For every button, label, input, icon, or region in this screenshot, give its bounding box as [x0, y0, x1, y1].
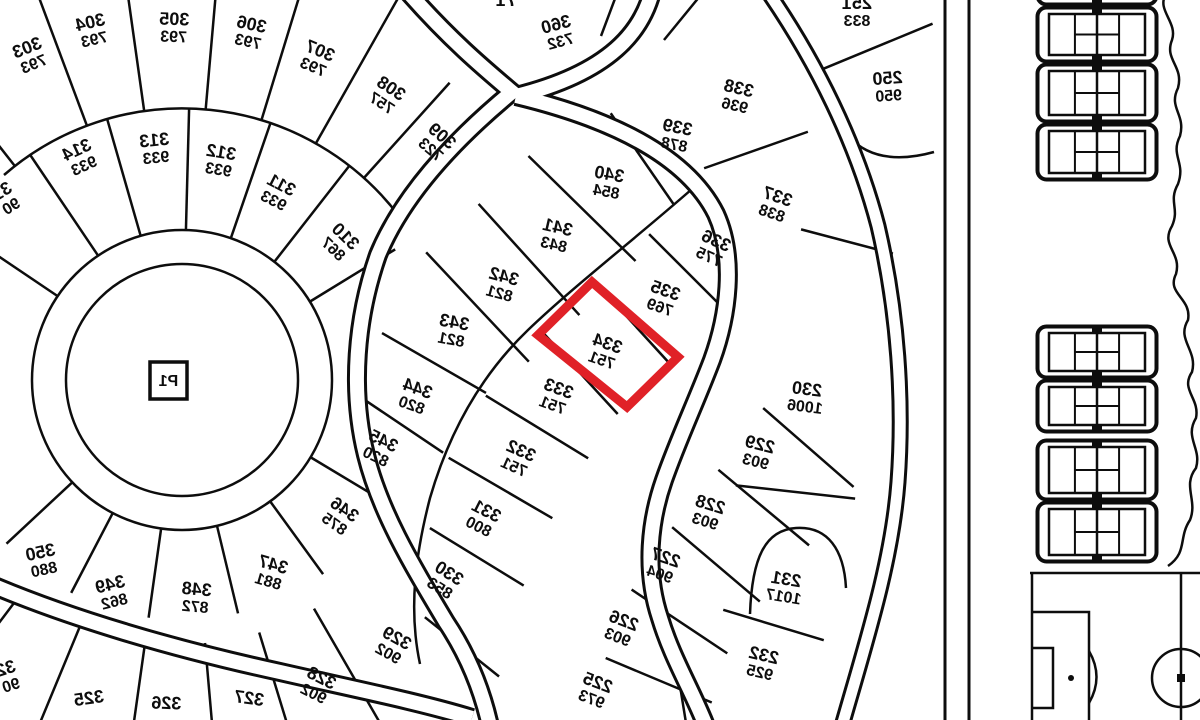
net-post [1092, 7, 1102, 13]
lot-label: 310867 [316, 219, 363, 266]
net-post [1092, 372, 1102, 378]
lot-area-number: 854 [591, 182, 620, 203]
goal-box [1032, 648, 1053, 708]
parcel-line [601, 0, 616, 36]
parcel-line [231, 123, 271, 238]
net-post [1092, 0, 1102, 5]
lot-area-number: 1006 [786, 397, 824, 418]
parcel-line [316, 0, 413, 143]
parcel-line [206, 0, 223, 109]
lot-number: 327 [233, 686, 266, 710]
net-post [1092, 502, 1102, 508]
parcel-line [718, 470, 809, 546]
net-post [1092, 380, 1102, 386]
lot-label: 226903 [600, 606, 641, 651]
tennis-court [1038, 124, 1157, 180]
lot-label: 228903 [688, 490, 728, 534]
lot-label: 225973 [574, 668, 615, 713]
lot-label: 333751 [535, 374, 576, 419]
net-post [1092, 116, 1102, 122]
net-post [1092, 426, 1102, 432]
parcel-line [186, 108, 189, 230]
ring-boundary-arc [4, 108, 399, 216]
road [516, 0, 652, 96]
lot-label: 350880 [24, 539, 61, 581]
parcel-line [763, 408, 853, 487]
center-spot [1177, 674, 1185, 682]
highlighted-lot-label: 334751 [585, 329, 625, 374]
lot-area-number: 833 [844, 13, 871, 30]
lot-label: 346875 [317, 493, 363, 541]
tennis-court [1038, 64, 1157, 122]
net-post [1092, 64, 1102, 70]
parcel-line [704, 132, 808, 169]
parcel-line [0, 228, 58, 296]
net-post [1092, 556, 1102, 562]
lot-label: 250950 [872, 67, 905, 106]
lot-label: 338936 [718, 75, 756, 118]
lot-label: 3290 [0, 656, 23, 697]
lot-number: 348 [181, 578, 213, 601]
lot-label: 335769 [643, 276, 683, 321]
lot-area-number: 793 [160, 29, 187, 47]
lot-label: 313933 [138, 129, 172, 169]
lot-number: 71 [496, 0, 516, 10]
net-post [1092, 56, 1102, 62]
lot-area-number: 933 [142, 149, 170, 169]
lot-label: 251833 [842, 0, 872, 30]
lot-label: 360732 [539, 11, 578, 55]
lot-label: 232925 [743, 642, 781, 685]
tennis-court [1038, 0, 1157, 5]
parcel-line [107, 119, 141, 236]
lot-label: 347881 [251, 551, 290, 595]
lot-label: 331800 [461, 495, 505, 542]
lot-label: 303793 [9, 33, 51, 79]
lot-label: 311933 [256, 169, 299, 215]
lot-label: 304793 [73, 9, 111, 52]
lot-label: 341843 [537, 214, 575, 257]
lot-label: 332751 [497, 435, 539, 481]
parcel-line [117, 0, 145, 111]
parcel-line [812, 24, 932, 74]
center-circle [1152, 649, 1200, 707]
lot-label: 2301006 [786, 377, 826, 418]
lot-number: 305 [159, 8, 190, 29]
lot-label: 327 [233, 686, 266, 710]
lot-label: 348872 [179, 578, 212, 617]
net-post [1092, 440, 1102, 446]
lot-label: 307793 [296, 36, 338, 82]
tennis-court [1038, 326, 1157, 378]
lot-area-number: 950 [875, 87, 903, 106]
lot-label: 343821 [435, 310, 471, 352]
penalty-box [1032, 612, 1089, 720]
parcel-line [672, 527, 760, 601]
tennis-courts [1038, 0, 1157, 562]
parcel-line [117, 641, 146, 720]
lot-number: 325 [73, 686, 106, 710]
soccer-field [1030, 573, 1200, 720]
lot-label: 306793 [231, 11, 268, 53]
lot-label: 344820 [394, 374, 435, 419]
net-post [1092, 124, 1102, 130]
plat-map: P1 3037933047933057933067933077933087573… [0, 0, 1200, 720]
lot-label: 229903 [739, 431, 777, 474]
lot-number: 251 [842, 0, 872, 13]
lot-label: 308757 [364, 72, 409, 119]
net-post [1092, 326, 1102, 332]
parcel-line [736, 485, 855, 498]
parcel-line [6, 482, 72, 543]
parcel-line [664, 0, 700, 40]
lot-label: 2311017 [764, 566, 805, 608]
lot-label: 71 [496, 0, 516, 10]
lot-area-number: 872 [181, 598, 209, 617]
net-post [1092, 494, 1102, 500]
island-label-box: P1 [150, 362, 187, 399]
lot-label: 337838 [755, 182, 795, 227]
lot-label: 340854 [590, 162, 626, 204]
lot-label: 3190 [0, 177, 25, 219]
tennis-court [1038, 380, 1157, 432]
lot-area-number: 821 [436, 330, 465, 351]
tree-line [1163, 0, 1197, 566]
lot-label: 342821 [483, 263, 522, 307]
lot-label: 314933 [59, 134, 102, 180]
lot-number: 326 [151, 692, 182, 713]
tennis-court [1038, 502, 1157, 562]
plat-map-page: P1 3037933047933057933067933077933087573… [0, 0, 1200, 720]
parcel-line [217, 526, 238, 614]
parcel-line [723, 610, 823, 640]
penalty-spot [1068, 675, 1074, 681]
lot-label: 312933 [202, 140, 237, 181]
lot-number: 250 [872, 67, 903, 89]
lot-label: 339878 [658, 114, 695, 156]
parcel-line [149, 529, 162, 618]
lot-label: 349862 [93, 571, 131, 614]
lot-label: 329902 [371, 622, 415, 669]
parcel-line [0, 10, 15, 166]
island-label: P1 [159, 373, 179, 390]
lot-label: 326 [151, 692, 182, 713]
lot-label: 305793 [158, 8, 189, 46]
tennis-court [1038, 440, 1157, 500]
net-post [1092, 174, 1102, 180]
lot-area-number: 933 [204, 160, 233, 181]
lot-label: 325 [73, 686, 106, 710]
tennis-court [1038, 7, 1157, 62]
